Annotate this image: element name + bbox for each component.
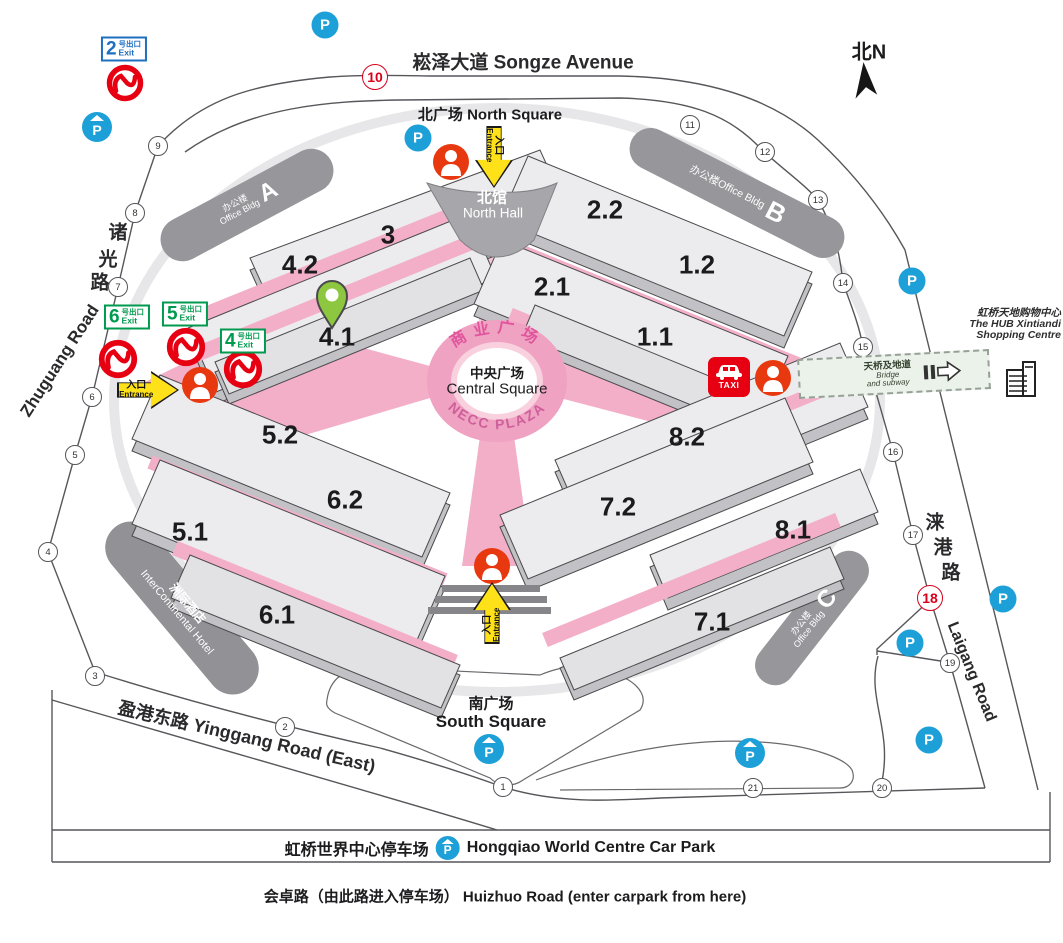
huizhuo-road-label: 会卓路（由此路进入停车场） Huizhuo Road (enter carpar…: [264, 886, 747, 907]
gate-marker: 12: [755, 142, 775, 162]
location-pin-icon: [310, 276, 354, 332]
gate-marker: 2: [275, 717, 295, 737]
gate-marker: 16: [883, 442, 903, 462]
hall-label-3: 3: [381, 220, 395, 251]
gate-marker: 15: [853, 337, 873, 357]
taxi-label: TAXI: [719, 380, 740, 390]
laigang-road-cn-char: 涞: [925, 508, 944, 535]
gate-marker: 9: [148, 136, 168, 156]
hall-label-8-1: 8.1: [775, 515, 811, 546]
hall-label-6-2: 6.2: [327, 485, 363, 516]
coach-area-outline: [536, 741, 853, 790]
north-square-label: 北广场 North Square: [418, 104, 562, 125]
north-hall-cn-label: 北馆: [477, 187, 507, 208]
parking-icon: P: [312, 12, 339, 39]
gate-marker: 7: [108, 277, 128, 297]
gate-marker: 3: [85, 666, 105, 686]
entrance-arrow-north: 入口Entrance: [475, 126, 513, 188]
gate-marker: 5: [65, 445, 85, 465]
hall-label-8-2: 8.2: [669, 422, 705, 453]
bridge-en-label2: and subway: [867, 378, 910, 389]
parking-icon: P: [897, 630, 924, 657]
covered-parking-icon: P: [474, 734, 504, 764]
gate-marker-18: 18: [917, 585, 943, 611]
zhuguang-road-cn-char: 路: [90, 268, 109, 295]
songze-avenue-label: 崧泽大道 Songze Avenue: [412, 48, 633, 75]
hall-label-5-2: 5.2: [262, 420, 298, 451]
gate-marker: 6: [82, 387, 102, 407]
person-icon: [181, 366, 219, 404]
laigang-road-cn-char: 港: [933, 533, 952, 560]
entrance-arrow-south: 入口Entrance: [473, 582, 511, 644]
metro-exit-5-badge: 5 号出口Exit: [162, 302, 208, 327]
south-square-cn-label: 南广场: [468, 693, 513, 714]
hall-label-1-1: 1.1: [637, 322, 673, 353]
metro-exit-6-badge: 6 号出口Exit: [104, 305, 150, 330]
gate-marker: 20: [872, 778, 892, 798]
gate-marker: 13: [808, 190, 828, 210]
metro-logo-icon: [222, 348, 264, 390]
service-road: [875, 600, 947, 786]
covered-parking-icon: P: [735, 738, 765, 768]
carpark-cn-label: 虹桥世界中心停车场: [285, 836, 429, 860]
person-icon: [473, 547, 511, 585]
hub-xintiandi-label: 虹桥天地购物中心The HUB XintiandiShopping Centre: [969, 308, 1061, 341]
central-square-en-label: Central Square: [447, 381, 548, 398]
gate-marker: 14: [833, 273, 853, 293]
hall-label-2-1: 2.1: [534, 272, 570, 303]
north-hall-en-label: North Hall: [463, 206, 523, 221]
metro-exit-4-badge: 4 号出口Exit: [220, 329, 266, 354]
gate-marker-10: 10: [362, 64, 388, 90]
laigang-road-cn-char: 路: [941, 558, 960, 585]
carpark-en-label: Hongqiao World Centre Car Park: [467, 839, 716, 857]
hall-label-1-2: 1.2: [679, 250, 715, 281]
central-square-cn-label: 中央广场: [470, 362, 524, 382]
compass-label: 北N: [852, 36, 886, 65]
gate-marker: 21: [743, 778, 763, 798]
entrance-arrow-west: 入口Entrance: [117, 371, 179, 409]
gate-marker: 19: [940, 653, 960, 673]
hall-label-6-1: 6.1: [259, 600, 295, 631]
hall-label-2-2: 2.2: [587, 195, 623, 226]
gate-marker: 4: [38, 542, 58, 562]
hall-label-5-1: 5.1: [172, 517, 208, 548]
gate-marker: 11: [680, 115, 700, 135]
carpark-strip-label: 虹桥世界中心停车场 P Hongqiao World Centre Car Pa…: [285, 836, 716, 860]
shopping-centre-building-icon: [1003, 360, 1041, 400]
pedestrian-crossing-icon: [921, 359, 962, 383]
necc-map: 商业广场 NECC PLAZA 崧泽大道 Songze Avenue 北广场 N…: [0, 0, 1063, 943]
hall-label-7-2: 7.2: [600, 492, 636, 523]
gate-marker: 1: [493, 777, 513, 797]
parking-icon: P: [405, 125, 432, 152]
parking-icon: P: [899, 268, 926, 295]
metro-logo-icon: [105, 63, 145, 103]
gate-marker: 17: [903, 525, 923, 545]
covered-parking-icon: P: [436, 836, 460, 860]
parking-icon: P: [990, 586, 1017, 613]
metro-exit-2-badge: 2 号出口Exit: [101, 37, 147, 62]
taxi-icon: TAXI: [708, 357, 750, 397]
compass-arrow-icon: [851, 61, 878, 99]
zhuguang-road-cn-char: 诸: [108, 218, 127, 245]
metro-logo-icon: [165, 326, 207, 368]
covered-parking-icon: P: [82, 112, 112, 142]
south-square-en-label: South Square: [436, 712, 547, 732]
gate-marker: 8: [125, 203, 145, 223]
person-icon: [754, 359, 792, 397]
parking-icon: P: [916, 727, 943, 754]
person-icon: [432, 143, 470, 181]
hall-label-7-1: 7.1: [694, 607, 730, 638]
